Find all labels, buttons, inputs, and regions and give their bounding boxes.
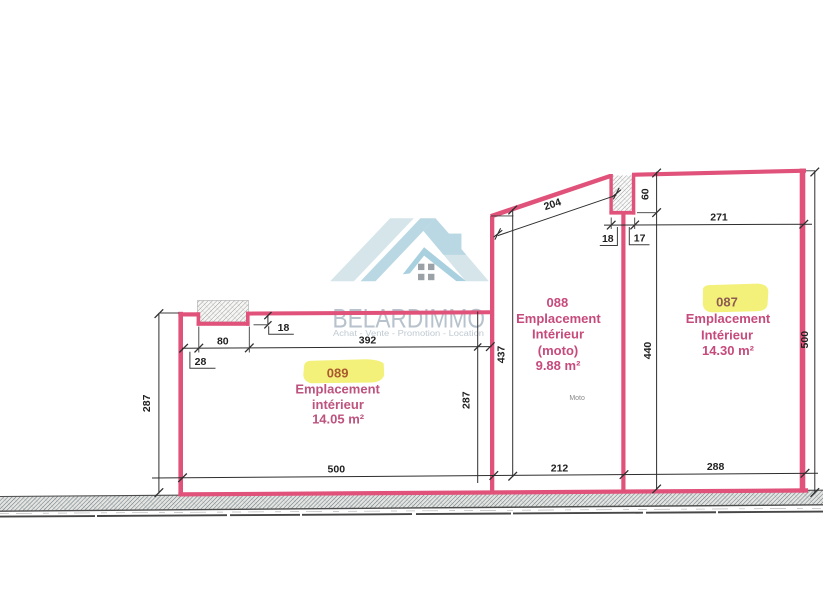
svg-text:271: 271 [710,212,728,224]
svg-text:500: 500 [799,331,811,349]
svg-text:500: 500 [328,463,346,475]
svg-text:Intérieur: Intérieur [701,327,753,342]
svg-text:088: 088 [547,295,569,310]
svg-text:80: 80 [217,335,229,347]
svg-text:intérieur: intérieur [312,397,364,412]
svg-text:14.30 m²: 14.30 m² [702,343,755,358]
svg-text:60: 60 [640,188,652,200]
svg-text:087: 087 [716,295,738,310]
svg-text:Achat - Vente - Promotion - Lo: Achat - Vente - Promotion - Location [333,329,485,338]
svg-text:Emplacement: Emplacement [516,311,601,326]
svg-text:437: 437 [495,346,507,364]
svg-text:17: 17 [634,233,646,245]
svg-text:9.88 m²: 9.88 m² [536,358,581,373]
svg-text:Emplacement: Emplacement [295,381,380,396]
svg-text:Intérieur: Intérieur [532,327,584,342]
svg-text:089: 089 [327,366,349,381]
svg-text:28: 28 [195,356,207,368]
svg-text:18: 18 [278,322,290,334]
svg-text:Moto: Moto [569,395,585,402]
svg-text:(moto): (moto) [538,343,578,358]
svg-text:212: 212 [551,463,569,475]
svg-text:392: 392 [359,335,377,347]
svg-text:14.05 m²: 14.05 m² [312,412,365,427]
svg-text:440: 440 [642,342,654,360]
svg-text:287: 287 [461,391,473,409]
svg-text:288: 288 [707,461,725,473]
svg-text:287: 287 [141,394,153,412]
svg-text:Emplacement: Emplacement [686,311,771,326]
svg-text:18: 18 [602,233,614,245]
